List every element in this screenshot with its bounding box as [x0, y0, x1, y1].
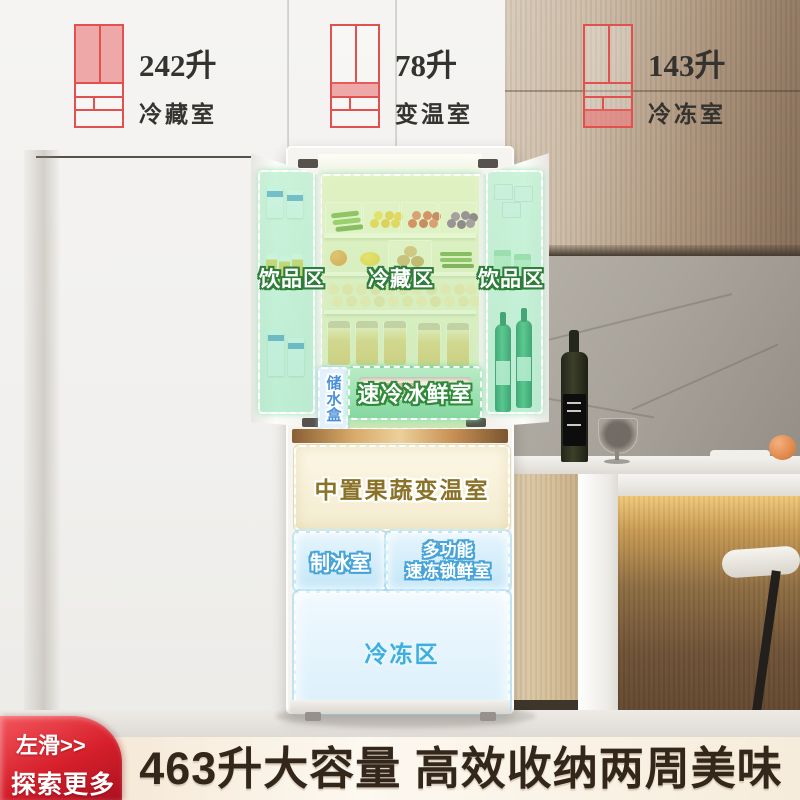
zone-label-right-door: 饮品区	[478, 263, 544, 293]
fridge-promo-image: 饮品区 冷藏区 饮品区 储水盒 速冷冰鲜室 中置果蔬变温室 制冰室 多功能 速冻…	[0, 0, 800, 800]
glass-foot	[604, 459, 630, 464]
spec-variable-room: 78升 变温室	[330, 24, 473, 129]
bar-stool-seat	[721, 545, 800, 578]
multi-function-label-line1: 多功能	[423, 540, 474, 561]
quick-cool-label: 速冷冰鲜室	[350, 368, 480, 418]
water-storage-box: 储水盒	[318, 367, 348, 430]
ice-room-label: 制冰室	[310, 547, 370, 576]
zone-label-left-door: 饮品区	[259, 263, 325, 293]
orange-fruit	[769, 435, 796, 460]
island-top	[618, 474, 800, 498]
fridge-plinth	[290, 700, 510, 714]
fridge-diagram-icon	[583, 24, 633, 128]
wood-cabinet-shadow	[505, 245, 800, 256]
explore-more-text: 探索更多	[11, 765, 122, 800]
fridge-foot	[305, 712, 321, 721]
spec-room-name: 冷藏室	[139, 95, 217, 129]
mid-drawer-zone: 中置果蔬变温室	[294, 445, 510, 531]
freezer-zone: 冷冻区	[294, 591, 510, 713]
swipe-hint-text: 左滑>>	[16, 728, 122, 760]
fridge-diagram-icon	[330, 24, 380, 128]
spec-volume: 78升	[395, 50, 473, 81]
zone-label-center: 冷藏区	[368, 263, 434, 293]
banner-title: 463升大容量 高效收纳两周美味	[126, 737, 796, 800]
marble-backsplash	[505, 256, 800, 460]
ice-room-zone: 制冰室	[294, 531, 386, 591]
spec-volume: 143升	[648, 50, 726, 81]
door-hinge	[478, 159, 498, 168]
spec-volume: 242升	[139, 50, 217, 81]
spec-cold-room: 242升 冷藏室	[74, 24, 217, 129]
multi-function-zone: 多功能 速冻锁鲜室	[386, 531, 510, 591]
spec-room-name: 变温室	[395, 95, 473, 129]
spec-freezer-room: 143升 冷冻室	[583, 24, 726, 129]
cabinet-shadow	[24, 150, 60, 738]
quick-cool-drawer: 速冷冰鲜室	[348, 366, 482, 420]
door-hinge	[298, 159, 318, 168]
fridge-foot	[480, 712, 496, 721]
water-box-label: 储水盒	[323, 375, 344, 423]
cabinet-seam	[287, 0, 289, 150]
serving-tray	[710, 450, 770, 459]
freezer-label: 冷冻区	[365, 635, 440, 669]
island-marble-edge	[578, 474, 622, 737]
spec-room-name: 冷冻室	[648, 95, 726, 129]
wine-bottle-label	[563, 394, 586, 446]
mid-drawer-label: 中置果蔬变温室	[315, 471, 490, 505]
cabinet-divider-line	[36, 156, 256, 158]
wood-base-cabinet	[505, 474, 585, 704]
fridge-diagram-icon	[74, 24, 124, 128]
multi-function-label-line2: 速冻锁鲜室	[406, 561, 491, 582]
drawer-wood-trim	[292, 429, 508, 443]
swipe-more-badge[interactable]: 左滑>> 探索更多	[0, 716, 122, 800]
